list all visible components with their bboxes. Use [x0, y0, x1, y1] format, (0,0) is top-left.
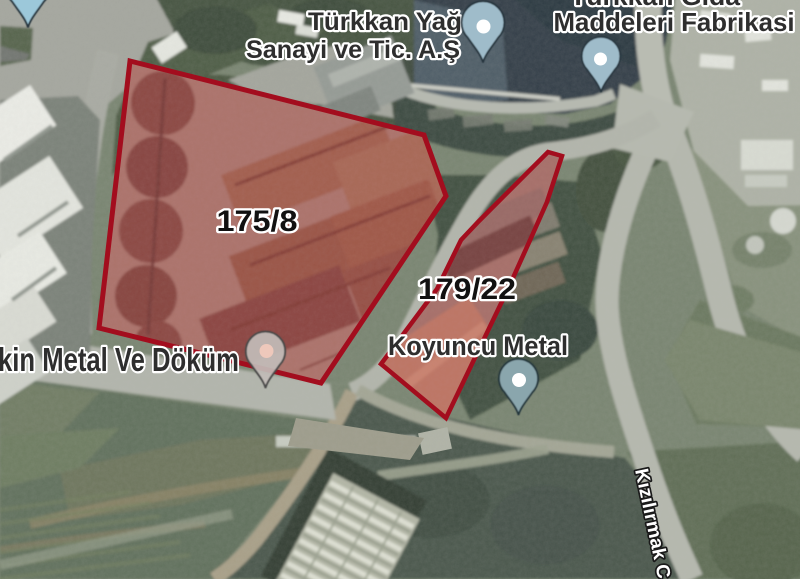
- svg-text:179/22: 179/22: [418, 273, 516, 306]
- svg-text:Türkkan Yağ: Türkkan Yağ: [308, 8, 462, 36]
- svg-text:Koyuncu Metal: Koyuncu Metal: [388, 331, 568, 361]
- svg-text:Sanayi ve Tic. A.Ş: Sanayi ve Tic. A.Ş: [246, 36, 460, 64]
- svg-text:175/8: 175/8: [217, 205, 298, 238]
- svg-text:kin Metal Ve Döküm: kin Metal Ve Döküm: [0, 341, 239, 378]
- svg-text:Maddeleri Fabrikasi: Maddeleri Fabrikasi: [554, 7, 795, 37]
